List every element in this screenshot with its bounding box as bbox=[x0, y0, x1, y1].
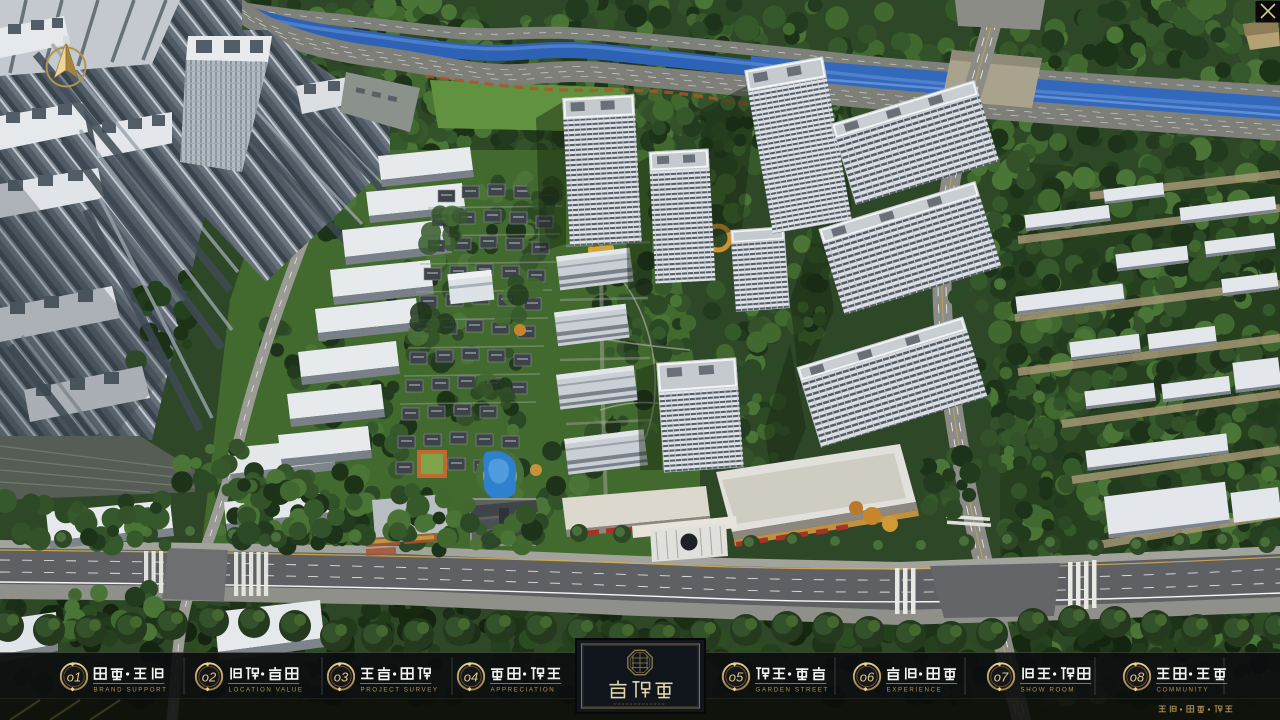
svg-text:o8: o8 bbox=[1130, 670, 1145, 685]
svg-text:o7: o7 bbox=[994, 670, 1009, 685]
svg-text:o2: o2 bbox=[202, 670, 217, 685]
svg-text:SHOW ROOM: SHOW ROOM bbox=[1021, 687, 1076, 694]
svg-text:GARDEN STREET: GARDEN STREET bbox=[756, 687, 829, 694]
svg-text:o5: o5 bbox=[729, 670, 744, 685]
svg-text:EXPERIENCE: EXPERIENCE bbox=[887, 687, 943, 694]
svg-text:COMMUNITY: COMMUNITY bbox=[1157, 687, 1210, 694]
svg-text:o6: o6 bbox=[860, 670, 875, 685]
svg-text:o4: o4 bbox=[464, 670, 478, 685]
svg-text:LOCATION VALUE: LOCATION VALUE bbox=[229, 687, 304, 694]
svg-text:PROJECT SURVEY: PROJECT SURVEY bbox=[361, 687, 439, 694]
svg-text:o3: o3 bbox=[334, 670, 349, 685]
svg-text:o1: o1 bbox=[67, 670, 81, 685]
svg-text:BRAND SUPPORT: BRAND SUPPORT bbox=[94, 687, 168, 694]
svg-text:APPRECIATION: APPRECIATION bbox=[491, 687, 556, 694]
